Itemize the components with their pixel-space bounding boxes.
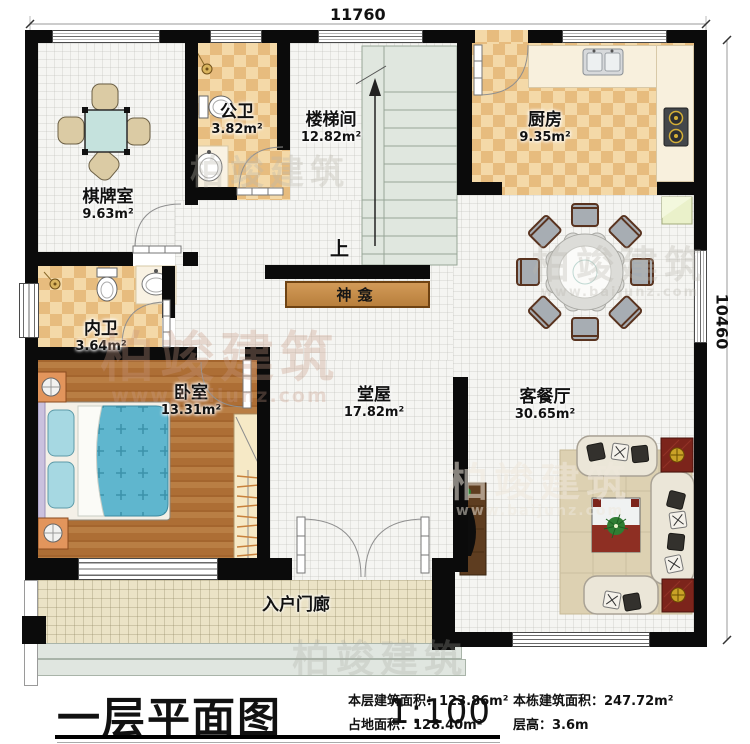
stat-building-area: 本栋建筑面积：247.72m² bbox=[513, 690, 673, 709]
wall-segment bbox=[457, 182, 502, 195]
window bbox=[19, 283, 39, 338]
wall-segment bbox=[650, 632, 694, 647]
stairs-up-label: 上 bbox=[330, 234, 349, 261]
wall-segment bbox=[162, 266, 175, 318]
floor-porch bbox=[38, 580, 432, 643]
wall-segment bbox=[453, 377, 468, 572]
wall-segment bbox=[528, 30, 562, 43]
title-underline bbox=[55, 735, 500, 739]
wall-segment bbox=[25, 558, 78, 580]
porch-pillar bbox=[22, 616, 46, 644]
window bbox=[562, 30, 667, 43]
floor-plan-canvas: 神龛 11760 104 bbox=[0, 0, 750, 744]
window bbox=[318, 30, 423, 43]
window bbox=[52, 30, 160, 43]
floor-bedroom bbox=[38, 360, 257, 558]
dimension-top-label: 11760 bbox=[330, 5, 386, 24]
window bbox=[512, 632, 650, 647]
title-underline-thin bbox=[57, 742, 500, 743]
room-label-hall: 堂屋 17.82m² bbox=[344, 386, 404, 420]
wall-segment bbox=[160, 30, 210, 43]
wall-segment bbox=[185, 187, 237, 200]
porch-step-2 bbox=[30, 659, 466, 676]
room-label-living-dining: 客餐厅 30.65m² bbox=[515, 388, 575, 422]
stat-land-area: 占地面积：128.40m² bbox=[348, 714, 482, 733]
floor-hall-corridor bbox=[175, 200, 457, 360]
porch-label: 入户门廊 bbox=[262, 590, 330, 615]
wall-segment bbox=[245, 347, 270, 360]
stat-floor-height: 层高：3.6m bbox=[513, 714, 589, 733]
window bbox=[78, 558, 218, 580]
stat-floor-area: 本层建筑面积：123.86m² bbox=[348, 690, 508, 709]
wall-segment bbox=[277, 43, 290, 150]
wall-segment bbox=[265, 265, 430, 279]
wall-segment bbox=[432, 558, 455, 650]
floor-kitchen-door-nook bbox=[475, 30, 528, 44]
wall-segment bbox=[694, 343, 707, 647]
wall-segment bbox=[657, 182, 694, 195]
wall-segment bbox=[423, 30, 475, 43]
wall-segment bbox=[457, 43, 472, 185]
room-label-kitchen: 厨房 9.35m² bbox=[519, 111, 570, 145]
wall-segment bbox=[455, 632, 512, 647]
shrine-altar: 神龛 bbox=[285, 281, 430, 308]
window bbox=[210, 30, 262, 43]
porch-step-1 bbox=[34, 643, 462, 659]
kitchen-counter-right bbox=[656, 45, 694, 182]
wall-segment bbox=[25, 30, 38, 283]
wall-segment bbox=[25, 252, 133, 266]
window bbox=[694, 250, 707, 343]
wall-segment bbox=[257, 360, 270, 558]
dimension-right-label: 10460 bbox=[713, 282, 732, 362]
room-label-chess: 棋牌室 9.63m² bbox=[82, 188, 133, 222]
room-label-public-bath: 公卫 3.82m² bbox=[211, 103, 262, 137]
room-label-private-bath: 内卫 3.64m² bbox=[75, 320, 126, 354]
room-label-stairwell: 楼梯间 12.82m² bbox=[301, 111, 361, 145]
wall-segment bbox=[262, 30, 318, 43]
room-label-bedroom: 卧室 13.31m² bbox=[161, 384, 221, 418]
wall-segment bbox=[218, 558, 292, 580]
wall-segment bbox=[25, 338, 38, 580]
wall-segment bbox=[183, 252, 198, 266]
wall-segment bbox=[694, 30, 707, 250]
shrine-label: 神龛 bbox=[336, 284, 378, 305]
wall-segment bbox=[185, 43, 198, 205]
